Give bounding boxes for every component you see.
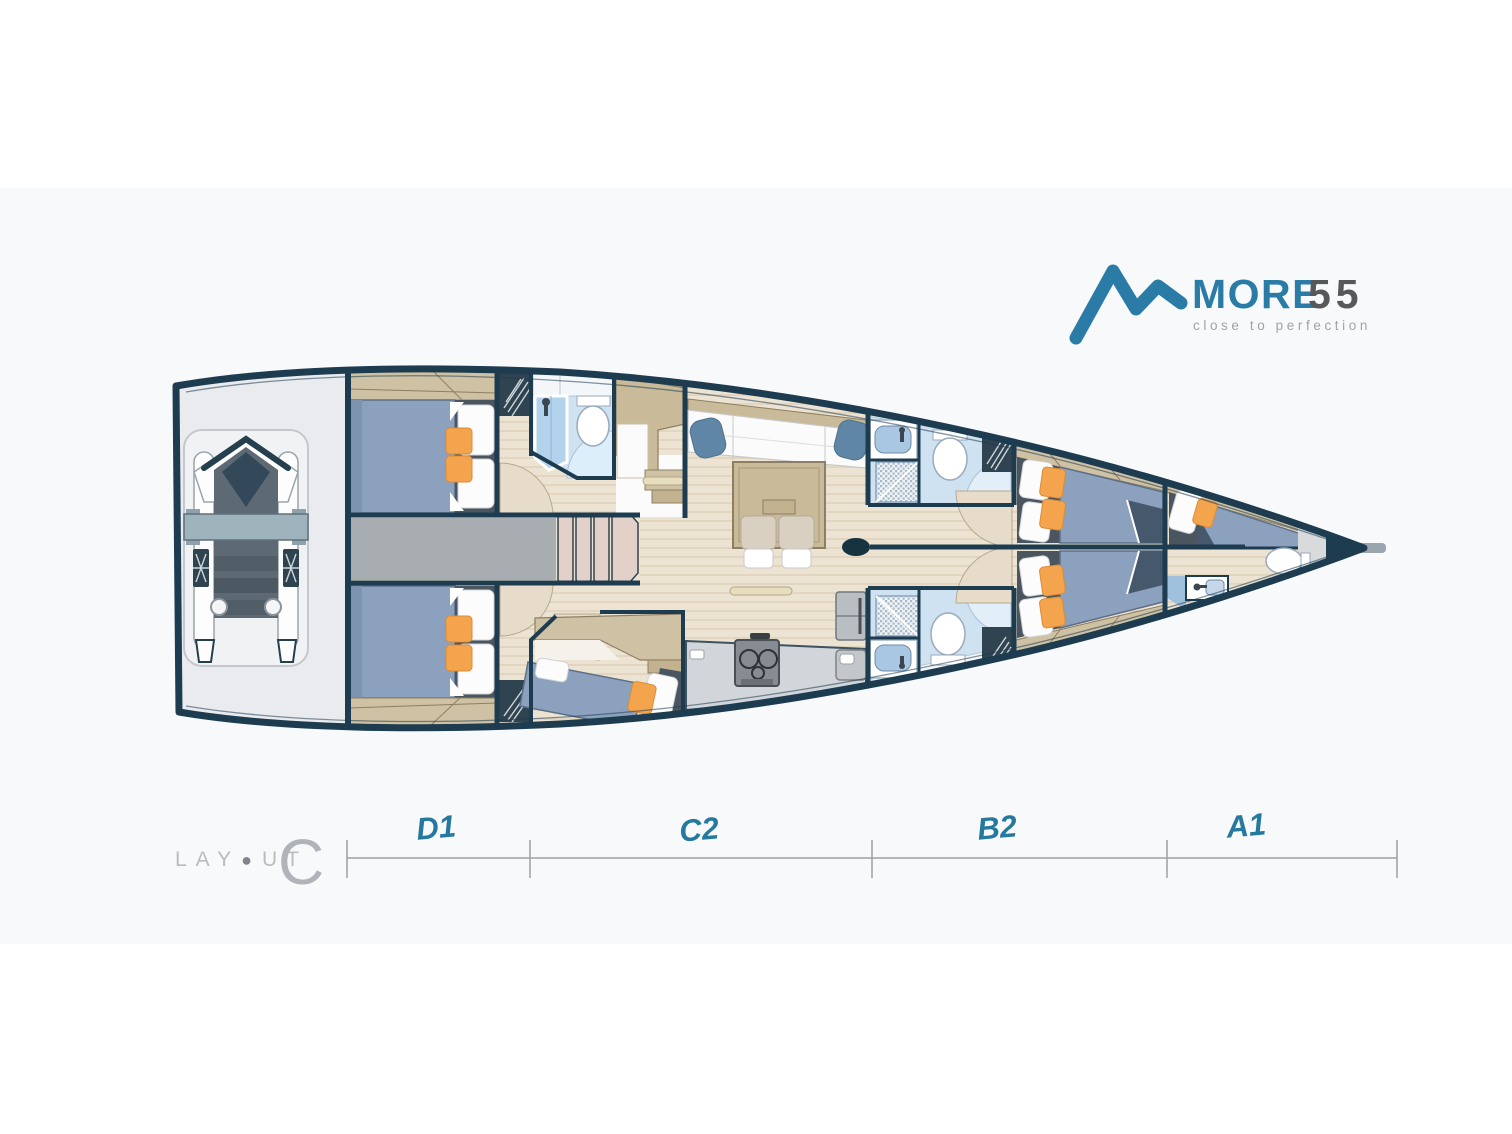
toilet-icon	[577, 396, 610, 446]
orange-cushion	[446, 428, 472, 454]
orange-cushion	[1039, 467, 1066, 499]
stair-step	[594, 514, 609, 582]
sink-icon	[870, 420, 917, 460]
section-label-d1: D1	[415, 808, 458, 846]
double-bed-mattress	[348, 400, 455, 513]
engine-room	[348, 518, 556, 580]
dinghy-handle	[211, 599, 227, 615]
more55-layout-c-drawing: MORE 55 close to perfection	[0, 0, 1512, 1134]
orange-cushion	[1039, 499, 1066, 531]
orange-cushion	[1039, 564, 1066, 596]
grab-rail	[643, 477, 684, 485]
salon-stool	[779, 516, 814, 549]
section-label-b2: B2	[976, 808, 1019, 846]
dinghy-slat	[214, 556, 278, 571]
stove-icon	[735, 633, 779, 686]
orange-cushion	[446, 616, 472, 642]
fridge-icon	[836, 592, 866, 640]
stair-step	[576, 514, 591, 582]
logo-model-text: 55	[1308, 271, 1364, 317]
aft-cabin-top	[348, 360, 497, 513]
dinghy-stern-cone	[196, 640, 214, 662]
sink-icon	[870, 640, 917, 678]
section-label-c2: C2	[678, 810, 721, 848]
counter-detail	[690, 650, 704, 659]
table-leaf-handle	[763, 500, 795, 514]
grab-rail	[730, 587, 792, 595]
nav-shelf	[652, 490, 685, 503]
dinghy-oarlock-left	[193, 549, 209, 587]
mast-icon	[842, 538, 870, 556]
shower-icon	[876, 462, 918, 502]
orange-cushion	[446, 645, 472, 671]
dinghy-oarlock-right	[283, 549, 299, 587]
dinghy-slat	[214, 578, 278, 593]
orange-cushion	[1039, 596, 1066, 628]
hanging-locker-icon	[499, 368, 531, 416]
logo-brand-text: MORE	[1192, 271, 1321, 317]
toilet-icon	[931, 613, 965, 665]
orange-cushion	[446, 456, 472, 482]
logo-tagline: close to perfection	[1193, 318, 1371, 333]
dinghy-stern-cone	[278, 640, 296, 662]
dinghy-bench	[184, 514, 308, 540]
dinghy-handle	[265, 599, 281, 615]
aft-cabin-bottom	[348, 586, 497, 735]
shower-icon	[876, 596, 918, 636]
section-label-a1: A1	[1224, 806, 1268, 844]
floor-plan-page: MORE 55 close to perfection	[0, 0, 1512, 1134]
stool-back	[744, 549, 773, 568]
stool-back	[782, 549, 811, 568]
stair-landing	[612, 514, 638, 582]
nav-seat	[617, 424, 648, 478]
layout-variant: C	[278, 826, 324, 898]
tender-garage	[160, 360, 348, 740]
double-bed-mattress	[348, 586, 455, 698]
galley-sink-icon	[836, 650, 866, 680]
salon-stool	[741, 516, 776, 549]
stair-step	[558, 514, 573, 582]
companionway-stairs	[556, 514, 640, 582]
